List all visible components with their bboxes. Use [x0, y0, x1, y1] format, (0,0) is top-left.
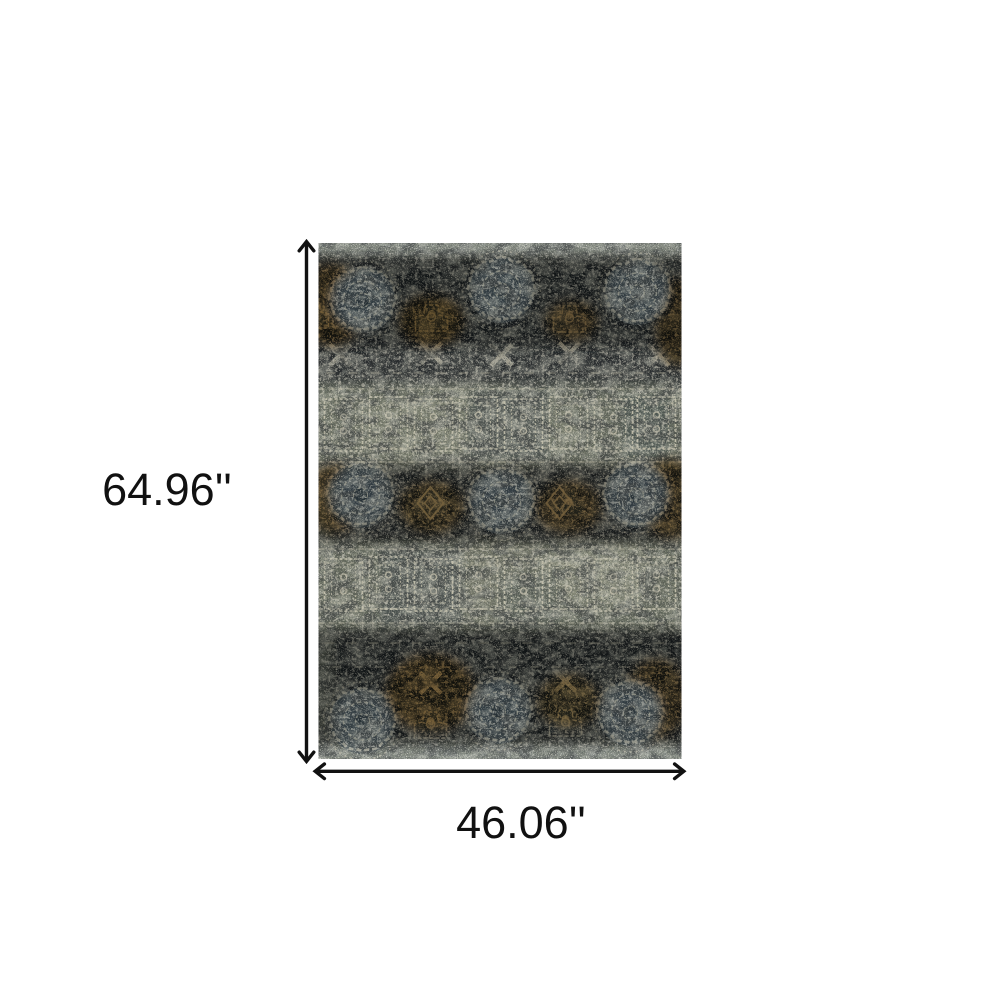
svg-text:64.96'': 64.96'' [102, 464, 232, 515]
svg-text:46.06'': 46.06'' [456, 797, 586, 848]
